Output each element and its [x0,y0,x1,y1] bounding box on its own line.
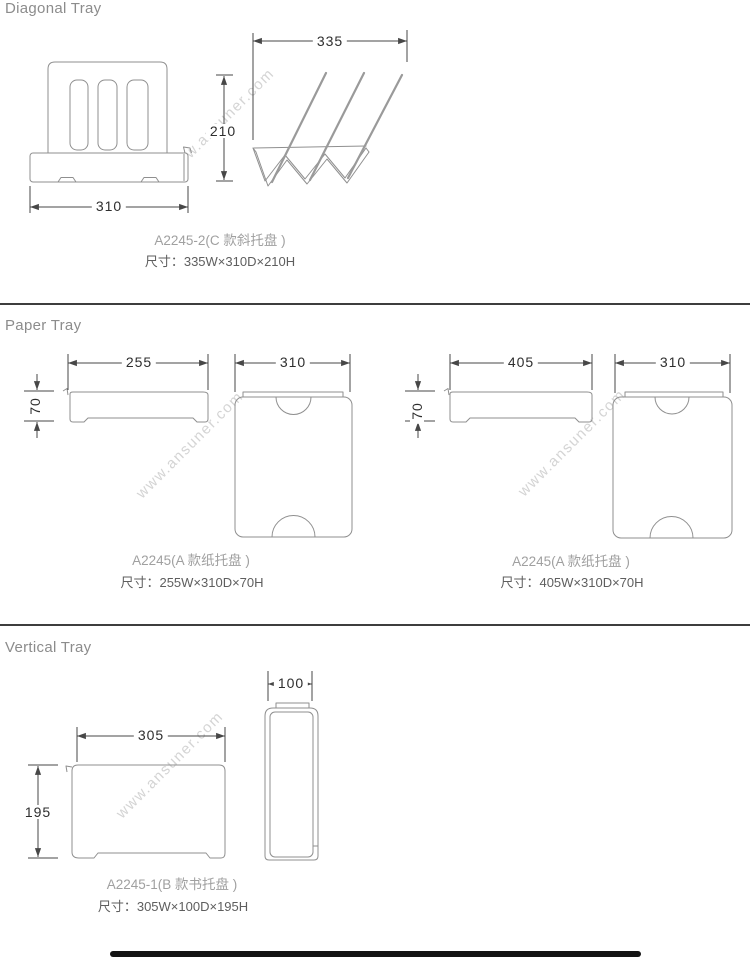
paper-tray-255-top-view [235,392,352,537]
dim-label-310-right: 310 [656,355,690,369]
section-title-vertical-tray: Vertical Tray [5,639,91,656]
dim-label-210: 210 [206,124,240,138]
caption-model-diagonal: A2245-2(C 款斜托盘 ) [154,229,285,249]
caption-size-paper-right: 尺寸：405W×310D×70H [500,572,643,591]
diagonal-tray-side-view [253,73,402,186]
caption-model-paper-left: A2245(A 款纸托盘 ) [132,549,250,569]
caption-model-vertical: A2245-1(B 款书托盘 ) [107,873,238,893]
caption-size-paper-left: 尺寸：255W×310D×70H [120,572,263,591]
section-divider [0,303,750,305]
caption-model-paper-right: A2245(A 款纸托盘 ) [512,550,630,570]
dim-label-255: 255 [122,355,156,369]
dim-label-310-left: 310 [276,355,310,369]
caption-size-diagonal: 尺寸：335W×310D×210H [145,251,295,270]
dim-label-70-left: 70 [28,393,42,419]
section-title-paper-tray: Paper Tray [5,317,81,334]
footer-divider-bar [110,951,641,957]
dim-label-335: 335 [313,34,347,48]
technical-drawings [0,0,750,958]
dim-label-305: 305 [134,728,168,742]
dim-label-405: 405 [504,355,538,369]
caption-size-vertical: 尺寸：305W×100D×195H [98,896,248,915]
spec-sheet-page: www.ansuner.com www.ansuner.com www.ansu… [0,0,750,958]
dim-label-195: 195 [21,805,55,819]
paper-tray-405-top-view [613,392,732,538]
vertical-tray-front-view [66,765,225,858]
section-divider [0,624,750,626]
dim-label-100: 100 [274,676,308,690]
diagonal-tray-front-view [30,62,192,182]
paper-tray-405-side-view [444,389,592,423]
paper-tray-255-side-view [63,389,208,423]
dim-label-70-right: 70 [410,398,424,424]
dim-label-310-front: 310 [92,199,126,213]
section-title-diagonal-tray: Diagonal Tray [5,0,101,17]
vertical-tray-side-view [265,703,318,860]
